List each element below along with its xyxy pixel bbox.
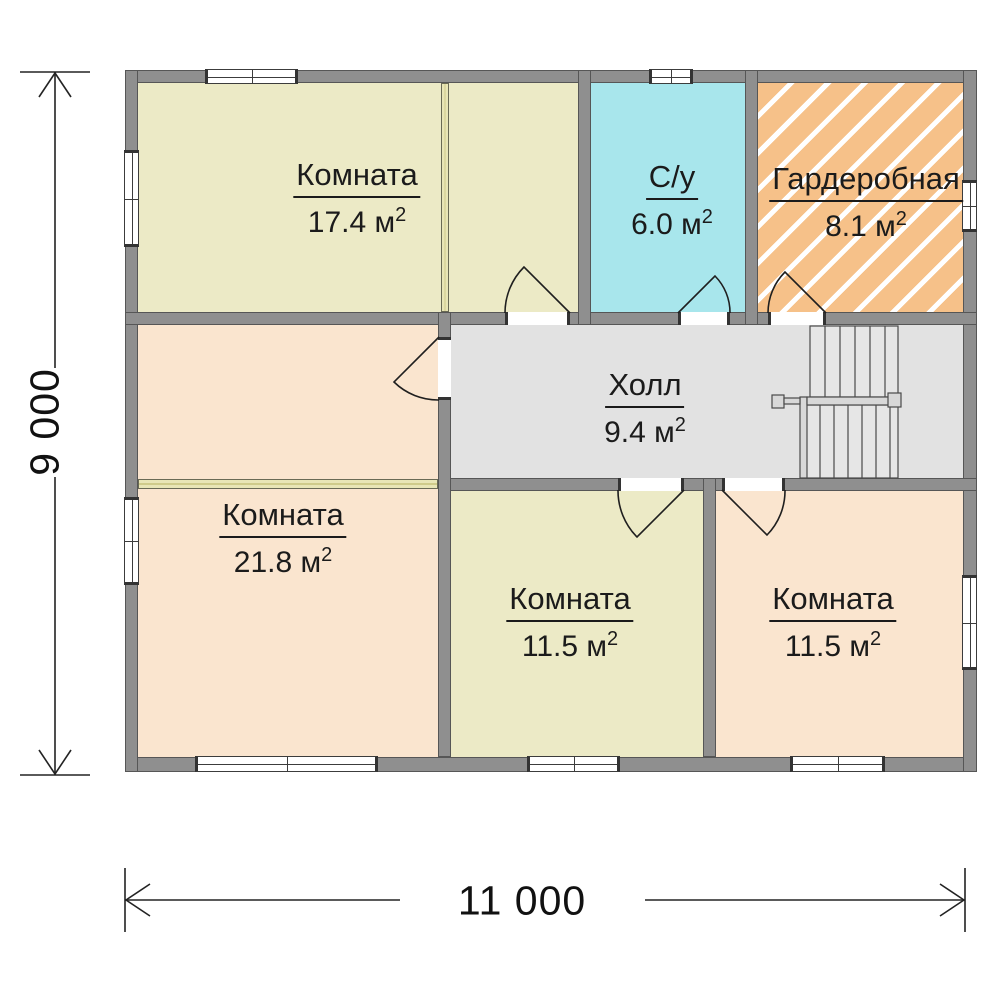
door-gap-room21 <box>438 337 451 400</box>
dimension-arrow-bottom <box>20 750 90 775</box>
window-bottom-room11-center <box>527 756 620 772</box>
room-label-room21: Комната 21.8 м2 <box>219 498 346 581</box>
room-name: Комната <box>219 498 346 538</box>
room-area: 17.4 м2 <box>293 203 420 241</box>
window-bottom-room11-right <box>790 756 885 772</box>
room-21-upper-floor <box>138 325 438 479</box>
room-area: 8.1 м2 <box>769 207 963 245</box>
wall-bathroom-right <box>745 70 758 325</box>
room-area: 21.8 м2 <box>219 543 346 581</box>
door-gap-room11-center <box>618 478 684 491</box>
room-label-room11-right: Комната 11.5 м2 <box>769 582 896 665</box>
partition-room21 <box>138 479 438 489</box>
door-gap-room11-right <box>722 478 785 491</box>
dimension-label-width: 11 000 <box>458 878 586 925</box>
wall-bathroom-left <box>578 70 591 325</box>
window-right-room11 <box>962 575 977 670</box>
dimension-label-height: 9 000 <box>22 368 69 476</box>
wall-vertical-right <box>703 478 716 757</box>
window-top-bathroom <box>649 69 693 84</box>
door-gap-room17 <box>505 312 570 325</box>
room-label-room17: Комната 17.4 м2 <box>293 158 420 241</box>
window-right-wardrobe <box>962 180 977 232</box>
window-left-room21 <box>124 497 139 585</box>
window-left-room17 <box>124 150 139 247</box>
floor-plan: Комната 17.4 м2 С/у 6.0 м2 Гардеробная 8… <box>0 0 1000 1000</box>
hall-floor <box>451 325 963 478</box>
room-area: 9.4 м2 <box>604 413 686 451</box>
room-area: 6.0 м2 <box>631 205 713 243</box>
window-bottom-room21 <box>195 756 378 772</box>
room-name: Комната <box>769 582 896 622</box>
room-name: Холл <box>605 368 684 408</box>
room-label-room11-center: Комната 11.5 м2 <box>506 582 633 665</box>
room-label-wardrobe: Гардеробная 8.1 м2 <box>769 162 963 245</box>
room-name: Комната <box>293 158 420 198</box>
room-name: С/у <box>646 160 699 200</box>
door-gap-wardrobe <box>768 312 826 325</box>
room-area: 11.5 м2 <box>769 627 896 665</box>
room-name: Комната <box>506 582 633 622</box>
room-label-hall: Холл 9.4 м2 <box>604 368 686 451</box>
room-area: 11.5 м2 <box>506 627 633 665</box>
room-label-bathroom: С/у 6.0 м2 <box>631 160 713 243</box>
dimension-arrow-right <box>940 868 965 932</box>
door-gap-bathroom <box>678 312 730 325</box>
dimension-arrow-left <box>125 868 150 932</box>
partition-room17 <box>441 83 449 312</box>
dimension-arrow-top <box>20 72 90 97</box>
window-top-room17 <box>205 69 298 84</box>
room-name: Гардеробная <box>769 162 963 202</box>
